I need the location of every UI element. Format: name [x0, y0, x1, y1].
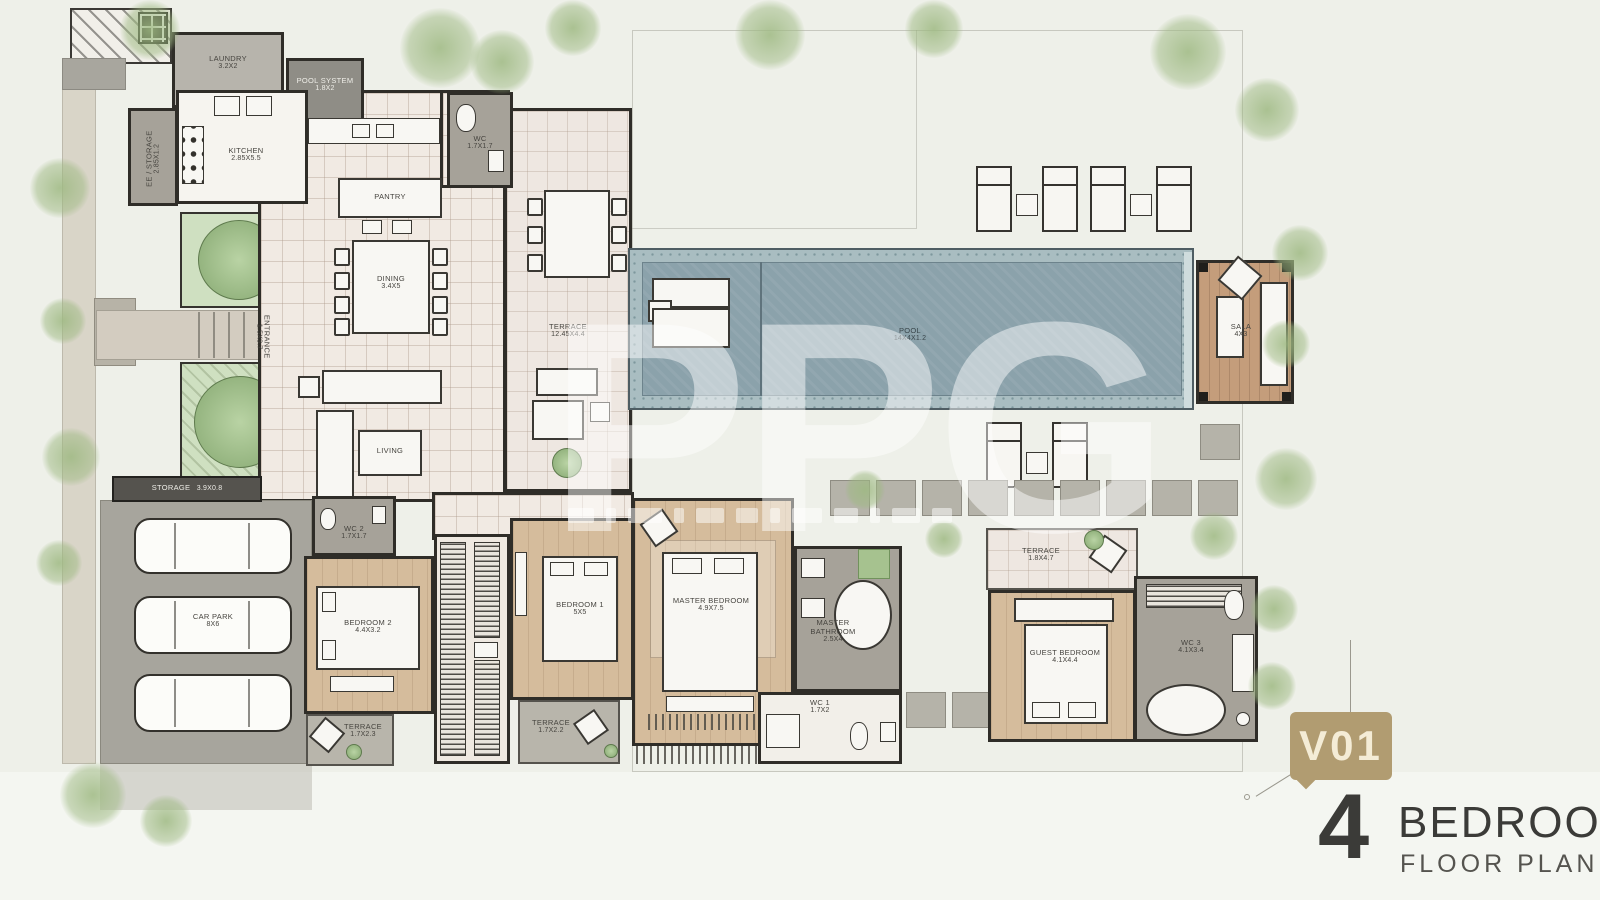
room-dims-text: 2.85x5.5 [196, 155, 296, 163]
pillow-icon [322, 640, 336, 660]
room-name-text: DINING [377, 274, 405, 283]
chair-icon [334, 296, 350, 314]
side-table-icon [1130, 194, 1152, 216]
sink-icon [372, 506, 386, 524]
post-icon [1199, 263, 1208, 272]
dresser-icon [474, 642, 498, 658]
shower-icon [766, 714, 800, 748]
label-wc2: WC 2 1.7x1.7 [322, 524, 386, 541]
room-dims-text: 4x3 [1206, 331, 1276, 339]
chair-icon [334, 318, 350, 336]
page-title: BEDROOM [1398, 798, 1600, 848]
post-icon [1282, 392, 1291, 401]
bench-icon [330, 676, 394, 692]
sofa-icon [322, 370, 442, 404]
badge-text: V01 [1299, 722, 1383, 770]
label-wc1: WC 1 1.7x2 [790, 698, 850, 715]
label-storage: STORAGE 3.9x0.8 [114, 483, 260, 493]
room-name-text: TERRACE [532, 718, 570, 727]
lot-boundary-line [916, 30, 917, 228]
bathtub-icon [1146, 684, 1226, 736]
sink-icon [376, 124, 394, 138]
watermark-subtext-bars [568, 508, 1028, 523]
room-dims-text: 4.1x3.4 [1156, 647, 1226, 655]
pillow-icon [1068, 702, 1096, 718]
room-dims-text: 4.9x7.5 [636, 605, 786, 613]
post-icon [1199, 392, 1208, 401]
room-name-text: MASTER BATHROOM [810, 618, 855, 636]
room-dims-text: 3.2x2 [176, 63, 280, 71]
room-name-text: WC 1 [810, 698, 830, 707]
room-dims-text: 2.5x4 [796, 636, 870, 644]
chair-icon [611, 198, 627, 216]
chair-icon [432, 296, 448, 314]
room-name-text: BEDROOM 2 [344, 618, 392, 627]
wardrobe-icon [474, 542, 500, 638]
label-sala: SALA 4x3 [1206, 322, 1276, 339]
label-kitchen: KITCHEN 2.85x5.5 [196, 146, 296, 163]
tree-icon [1235, 78, 1299, 142]
lounger-icon [1042, 166, 1078, 232]
watermark: PPG [548, 270, 1188, 600]
toilet-icon [456, 104, 476, 132]
room-name-text: WC [473, 134, 486, 143]
stool-icon [362, 220, 382, 234]
stepping-stone [1198, 480, 1238, 516]
title-number: 4 [1318, 786, 1369, 869]
tree-icon [42, 428, 100, 486]
plant-pot-icon [604, 744, 618, 758]
chair-icon [527, 198, 543, 216]
label-master-bathroom: MASTER BATHROOM 2.5x4 [796, 618, 870, 644]
stepping-stone [952, 692, 992, 728]
label-laundry: LAUNDRY 3.2x2 [176, 54, 280, 71]
label-living: LIVING [355, 446, 425, 455]
toilet-icon [850, 722, 868, 750]
chair-icon [527, 226, 543, 244]
sink-icon [488, 150, 504, 172]
pillow-icon [1032, 702, 1060, 718]
driveway [100, 764, 312, 810]
stepping-stone [906, 692, 946, 728]
tree-icon [1150, 14, 1226, 90]
room-dims-text: 8x6 [158, 621, 268, 629]
car-icon [134, 674, 292, 732]
room-dims-text: 1.8x2 [288, 85, 362, 93]
sink-icon [880, 722, 896, 742]
sink-icon [801, 598, 825, 618]
label-bedroom1: BEDROOM 1 5x5 [530, 600, 630, 617]
room-dims-text: 1.7x1.7 [450, 143, 510, 151]
room-dims-text: 1.7x2 [790, 707, 850, 715]
stepping-stone [1200, 424, 1240, 460]
bench-icon [666, 696, 754, 712]
sink-icon [246, 96, 272, 116]
room-name-text: LAUNDRY [209, 54, 247, 63]
chair-icon [611, 226, 627, 244]
room-name-text: SALA [1231, 322, 1251, 331]
room-dims-text: 1.7x2.3 [334, 731, 392, 739]
tree-icon [40, 298, 86, 344]
counter-icon [308, 118, 440, 144]
wardrobe-icon [474, 660, 500, 756]
curb-block [62, 58, 126, 90]
chair-icon [334, 272, 350, 290]
room-dims-text: 5x5 [530, 609, 630, 617]
wardrobe-icon [440, 542, 466, 756]
tree-icon [1255, 448, 1317, 510]
room-dims-text: 1.7x2.2 [522, 727, 580, 735]
room-name-text: STORAGE [152, 483, 191, 492]
chair-icon [432, 248, 448, 266]
tree-icon [36, 540, 82, 586]
tree-icon [735, 0, 805, 70]
toilet-icon [1224, 590, 1244, 620]
chair-icon [334, 248, 350, 266]
tree-icon [140, 795, 192, 847]
room-dims-text: 1.5x3.7 [254, 292, 262, 382]
label-guest-bedroom: GUEST BEDROOM 4.1x4.4 [1000, 648, 1130, 665]
room-name-text: BEDROOM 1 [556, 600, 604, 609]
sink-icon [1236, 712, 1250, 726]
unit-badge: V01 [1290, 712, 1392, 780]
room-name-text: WC 2 [344, 524, 364, 533]
tree-icon [400, 8, 480, 88]
side-table-icon [1016, 194, 1038, 216]
room-name-text: CAR PARK [193, 612, 233, 621]
page-subtitle: FLOOR PLAN [1400, 850, 1598, 879]
room-name-text: TERRACE [344, 722, 382, 731]
tree-icon [120, 0, 180, 60]
label-bedroom2: BEDROOM 2 4.4x3.2 [318, 618, 418, 635]
tree-icon [60, 762, 126, 828]
lounger-icon [1156, 166, 1192, 232]
floor-plan-canvas: ENTRANCE 1.5x3.7 LAUNDRY 3.2x2 POOL SYST… [0, 0, 1600, 900]
tree-icon [1250, 585, 1298, 633]
label-ee-storage: EE / STORAGE 2.85x1.2 [144, 109, 161, 209]
bench-icon [1014, 598, 1114, 622]
room-name-text: EE / STORAGE [144, 130, 153, 186]
tree-icon [905, 0, 963, 58]
deck-mat [648, 714, 776, 730]
room-dims-text: 4.4x3.2 [318, 627, 418, 635]
room-name-text: GUEST BEDROOM [1030, 648, 1100, 657]
room-name-text: POOL SYSTEM [297, 76, 354, 85]
room-dims-text: 3.4x5 [356, 283, 426, 291]
side-table-icon [298, 376, 320, 398]
lot-boundary-line [632, 228, 917, 229]
label-pantry: PANTRY [340, 192, 440, 201]
tree-icon [470, 30, 534, 94]
sink-icon [214, 96, 240, 116]
room-name-text: KITCHEN [228, 146, 263, 155]
room-dims-text: 1.7x1.7 [322, 533, 386, 541]
chair-icon [432, 272, 448, 290]
pillow-icon [322, 592, 336, 612]
room-dims-text: 2.85x1.2 [153, 109, 161, 209]
label-car-park: CAR PARK 8x6 [158, 612, 268, 629]
lounger-icon [1090, 166, 1126, 232]
leader-dot [1244, 794, 1250, 800]
tree-icon [1248, 662, 1296, 710]
label-terrace-b1: TERRACE 1.7x2.2 [522, 718, 580, 735]
room-name-text: ENTRANCE [263, 315, 272, 359]
room-name-text: WC 3 [1181, 638, 1201, 647]
leader-line [1350, 640, 1351, 712]
stool-icon [392, 220, 412, 234]
tree-icon [1190, 512, 1238, 560]
lounger-icon [976, 166, 1012, 232]
sink-icon [352, 124, 370, 138]
label-wc-top: WC 1.7x1.7 [450, 134, 510, 151]
chair-icon [432, 318, 448, 336]
label-entrance: ENTRANCE 1.5x3.7 [254, 292, 271, 382]
tree-icon [30, 158, 90, 218]
room-name-text: LIVING [377, 446, 403, 455]
tree-icon [1272, 225, 1328, 281]
chair-icon [527, 254, 543, 272]
room-name-text: PANTRY [374, 192, 406, 201]
plant-pot-icon [346, 744, 362, 760]
label-dining: DINING 3.4x5 [356, 274, 426, 291]
tv-cabinet-icon [515, 552, 527, 616]
label-pool-system: POOL SYSTEM 1.8x2 [288, 76, 362, 93]
label-terrace-b2: TERRACE 1.7x2.3 [334, 722, 392, 739]
car-icon [134, 518, 292, 574]
room-dims-text: 4.1x4.4 [1000, 657, 1130, 665]
room-dims-text: 3.9x0.8 [197, 485, 223, 492]
label-wc3: WC 3 4.1x3.4 [1156, 638, 1226, 655]
tree-icon [545, 0, 601, 56]
